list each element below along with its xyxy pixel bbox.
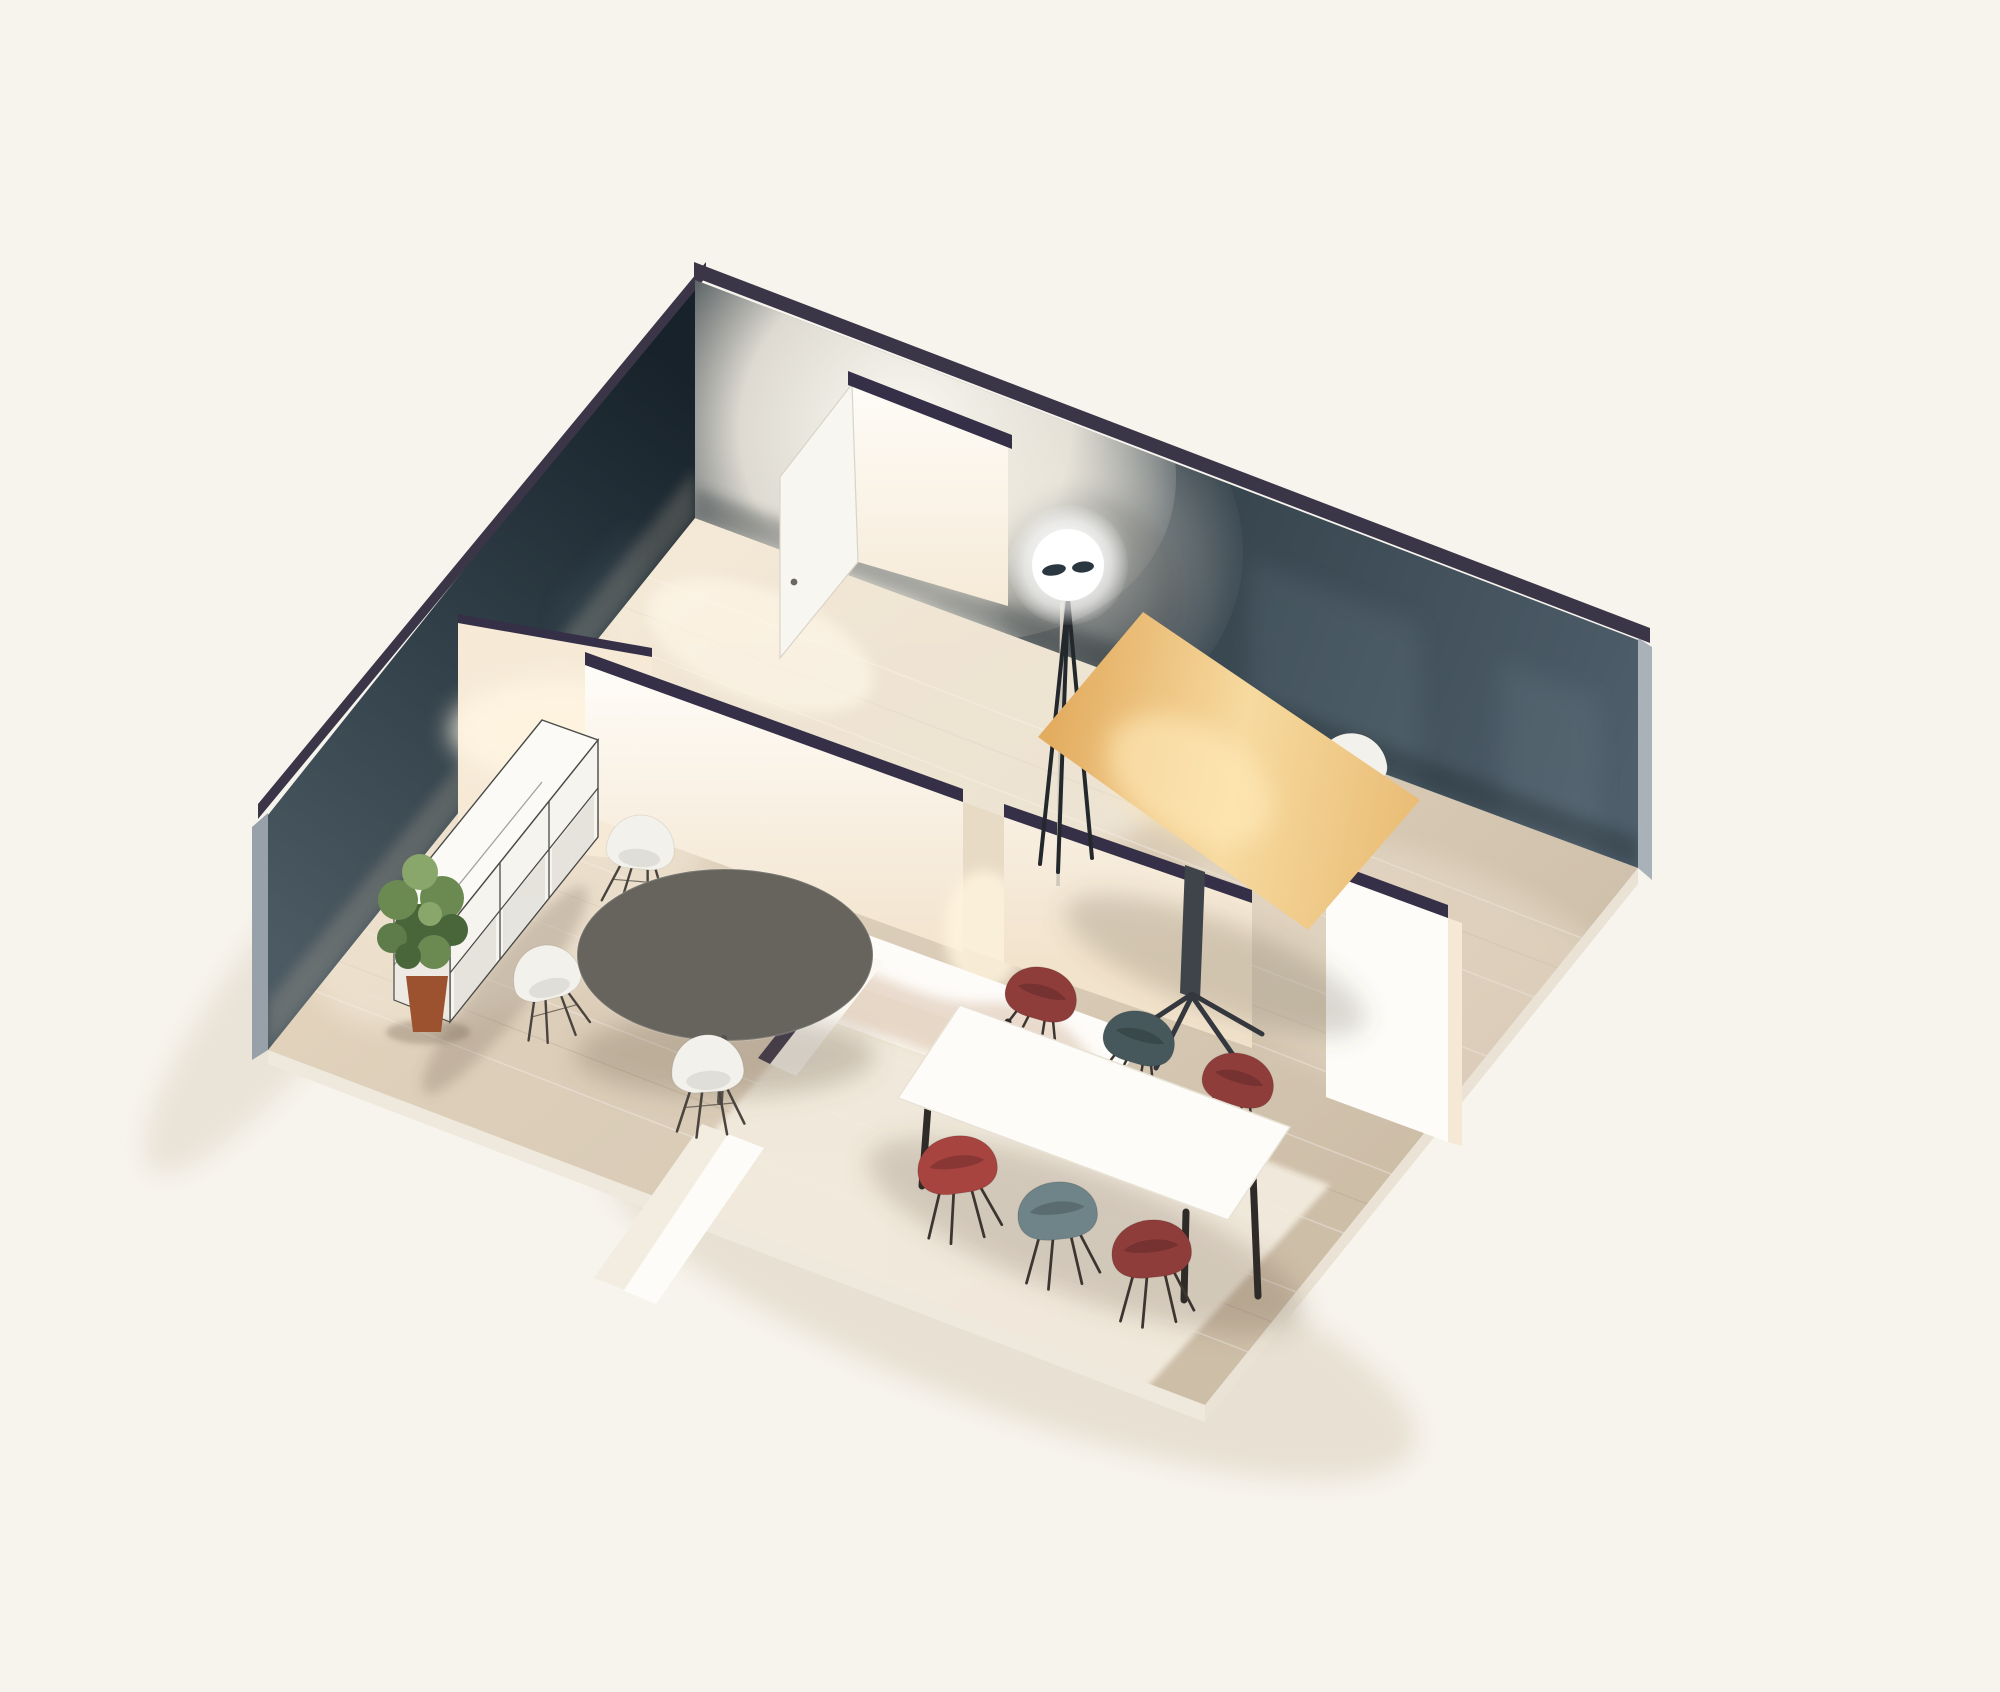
door-handle[interactable] [791,579,798,586]
back-left-wall-outer-edge [252,813,268,1060]
back-right-wall-outer-edge [1638,638,1652,880]
floor-plan-render [0,0,2000,1692]
plant-pot [406,976,448,1032]
right-cut-panel-side [1448,918,1462,1146]
